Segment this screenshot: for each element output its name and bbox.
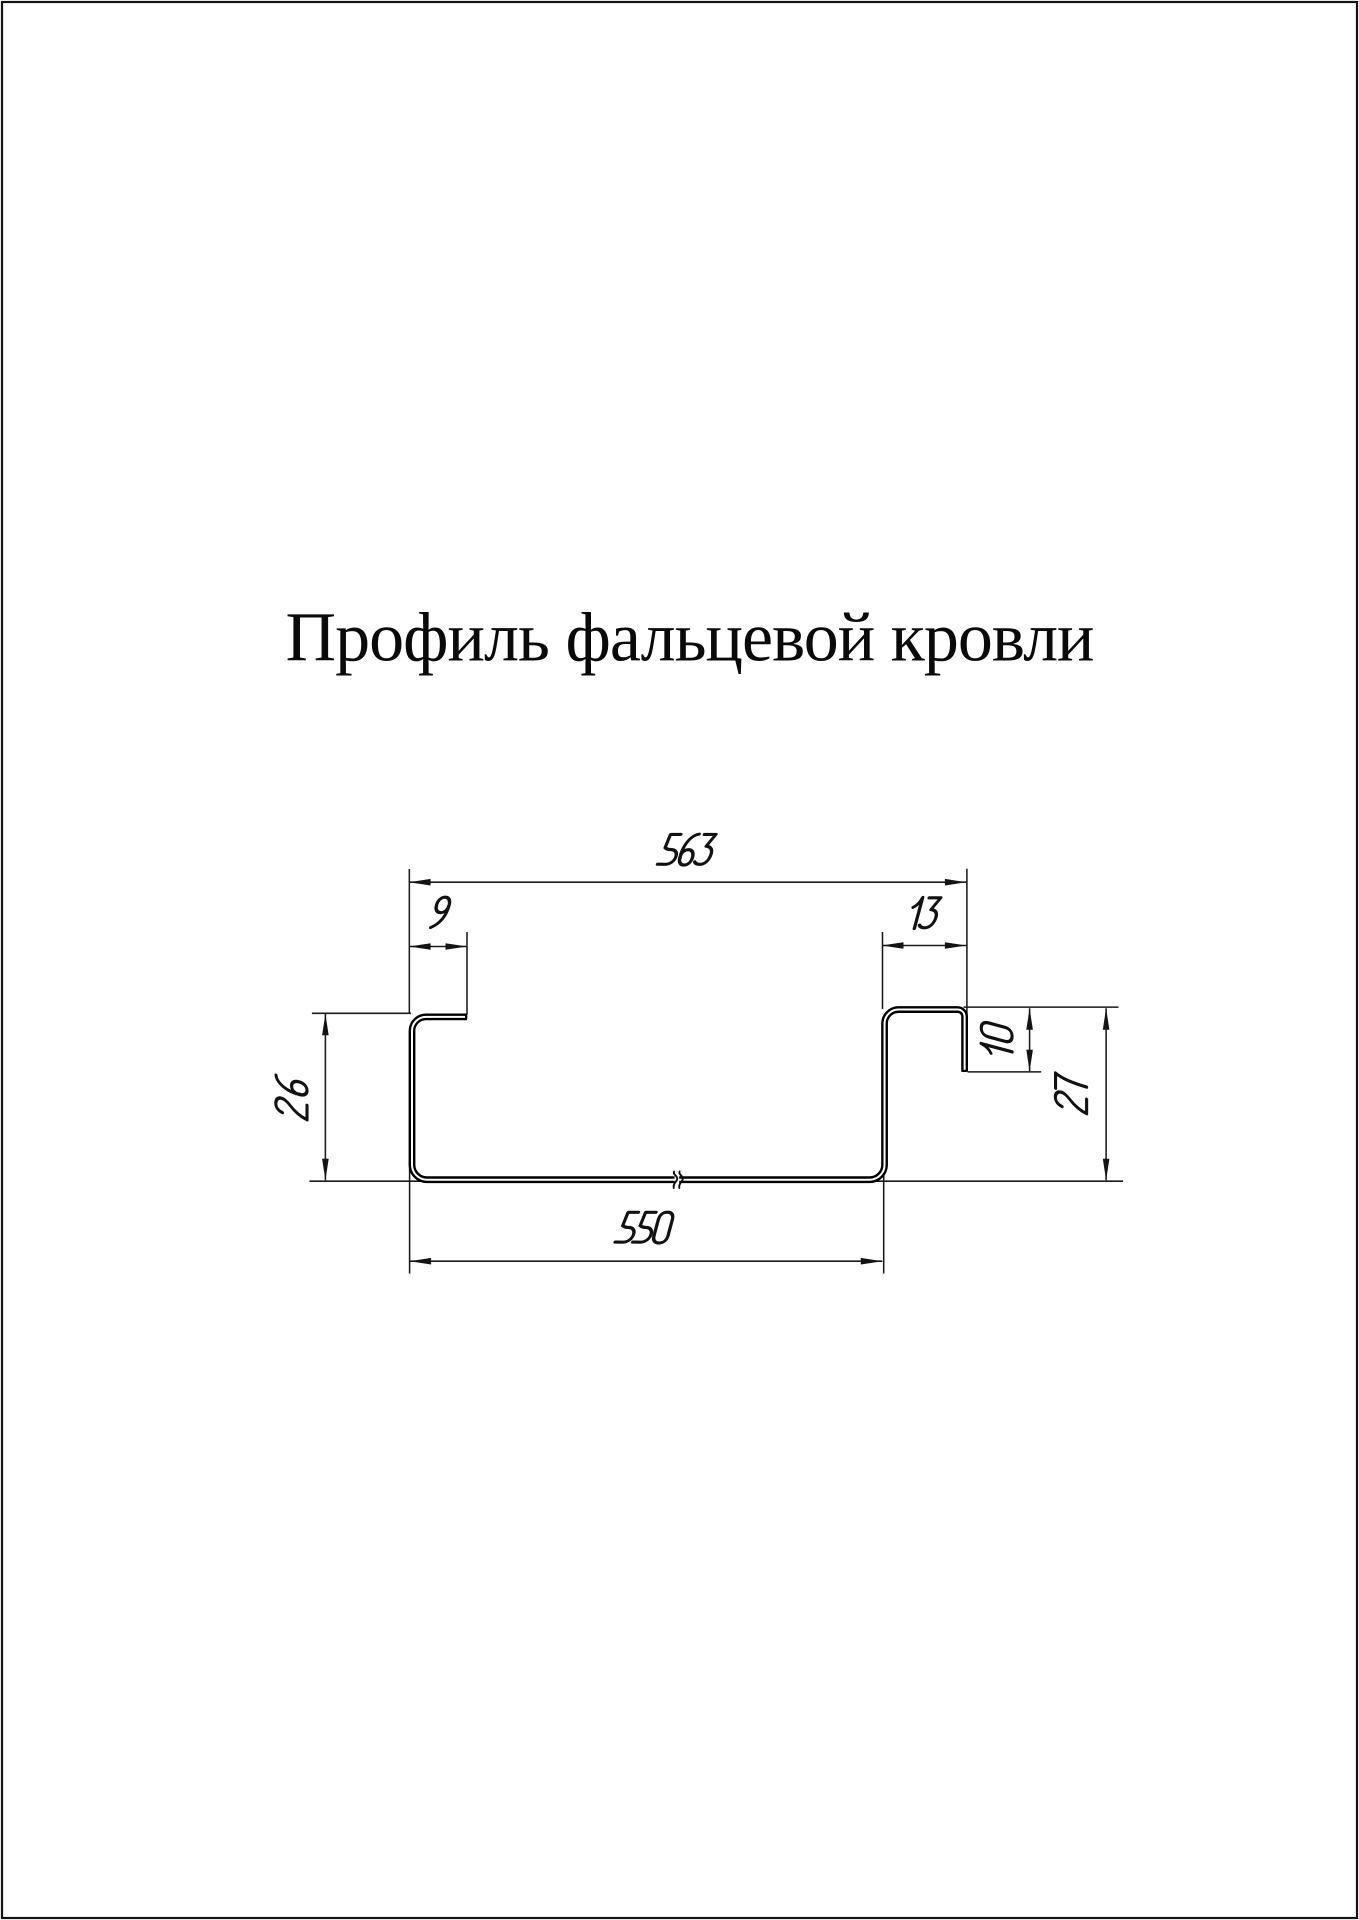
svg-text:Профиль фальцевой кровли: Профиль фальцевой кровли <box>286 600 1095 677</box>
